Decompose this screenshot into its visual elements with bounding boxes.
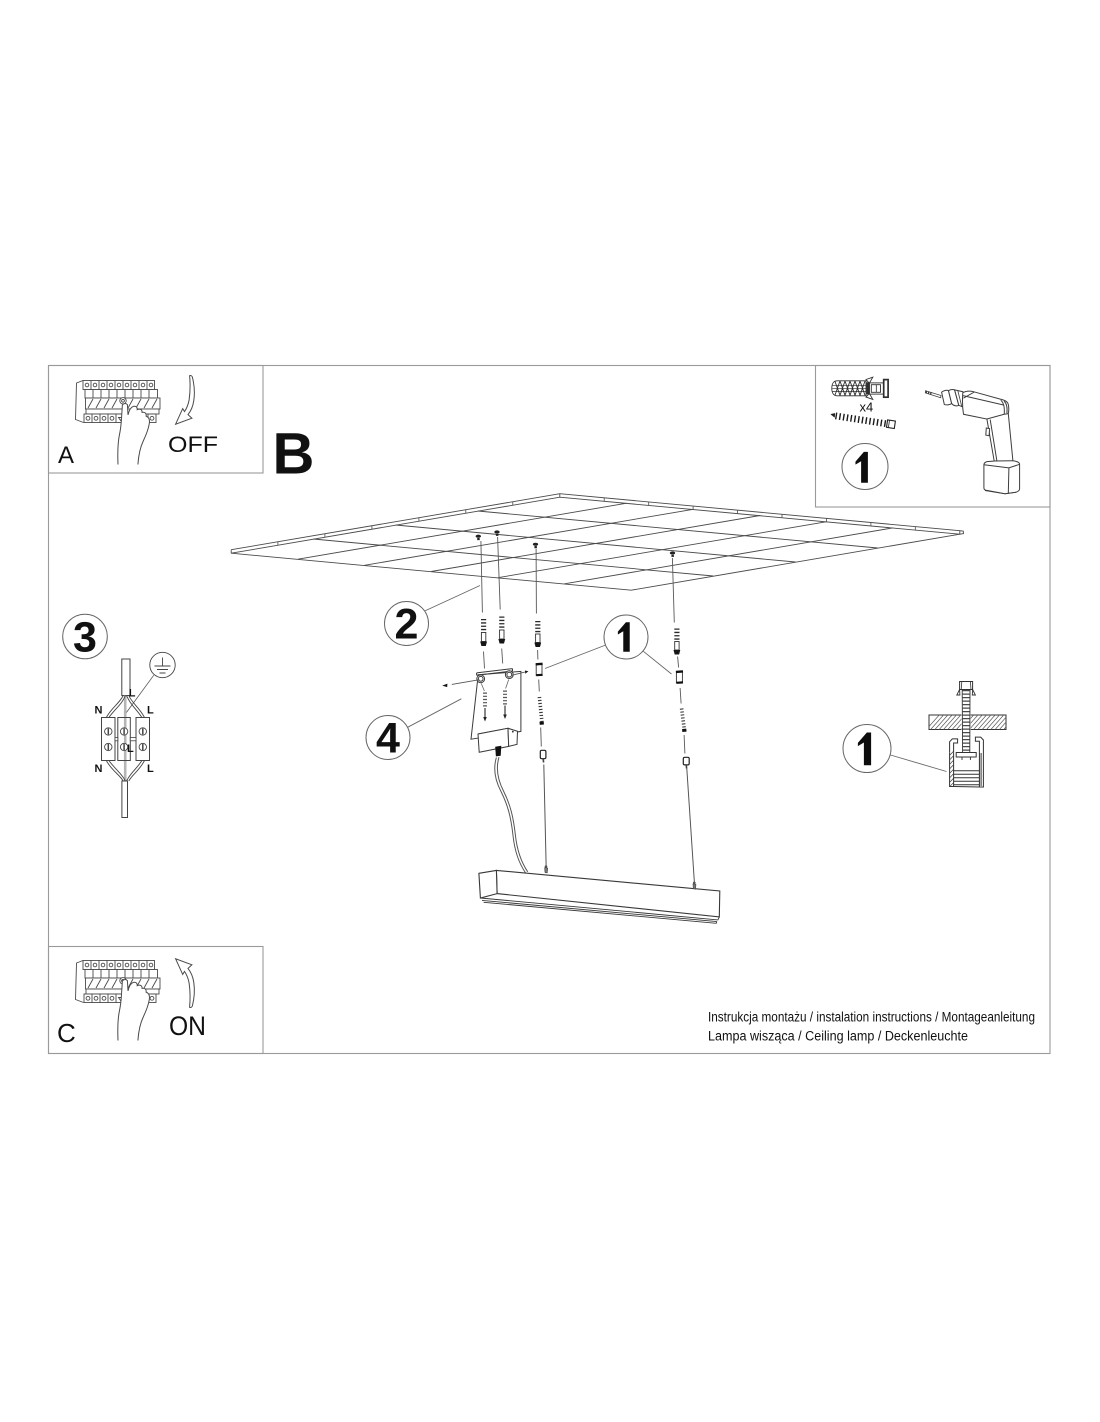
svg-text:L: L bbox=[147, 705, 154, 717]
svg-text:Instrukcja montażu / instalati: Instrukcja montażu / instalation instruc… bbox=[708, 1010, 1035, 1025]
svg-text:Lampa wisząca / Ceiling lamp /: Lampa wisząca / Ceiling lamp / Deckenleu… bbox=[708, 1029, 968, 1044]
svg-text:B: B bbox=[273, 422, 315, 487]
svg-text:ON: ON bbox=[169, 1011, 206, 1041]
svg-text:N: N bbox=[95, 763, 103, 775]
svg-text:C: C bbox=[57, 1018, 76, 1048]
svg-text:A: A bbox=[58, 442, 74, 469]
svg-text:4: 4 bbox=[376, 715, 400, 763]
svg-text:x4: x4 bbox=[860, 400, 874, 415]
svg-text:L: L bbox=[129, 688, 136, 700]
svg-text:L: L bbox=[147, 763, 154, 775]
svg-text:N: N bbox=[95, 705, 103, 717]
svg-text:L: L bbox=[127, 743, 134, 755]
svg-text:OFF: OFF bbox=[168, 432, 218, 457]
svg-text:3: 3 bbox=[73, 614, 97, 662]
svg-text:2: 2 bbox=[395, 601, 419, 649]
